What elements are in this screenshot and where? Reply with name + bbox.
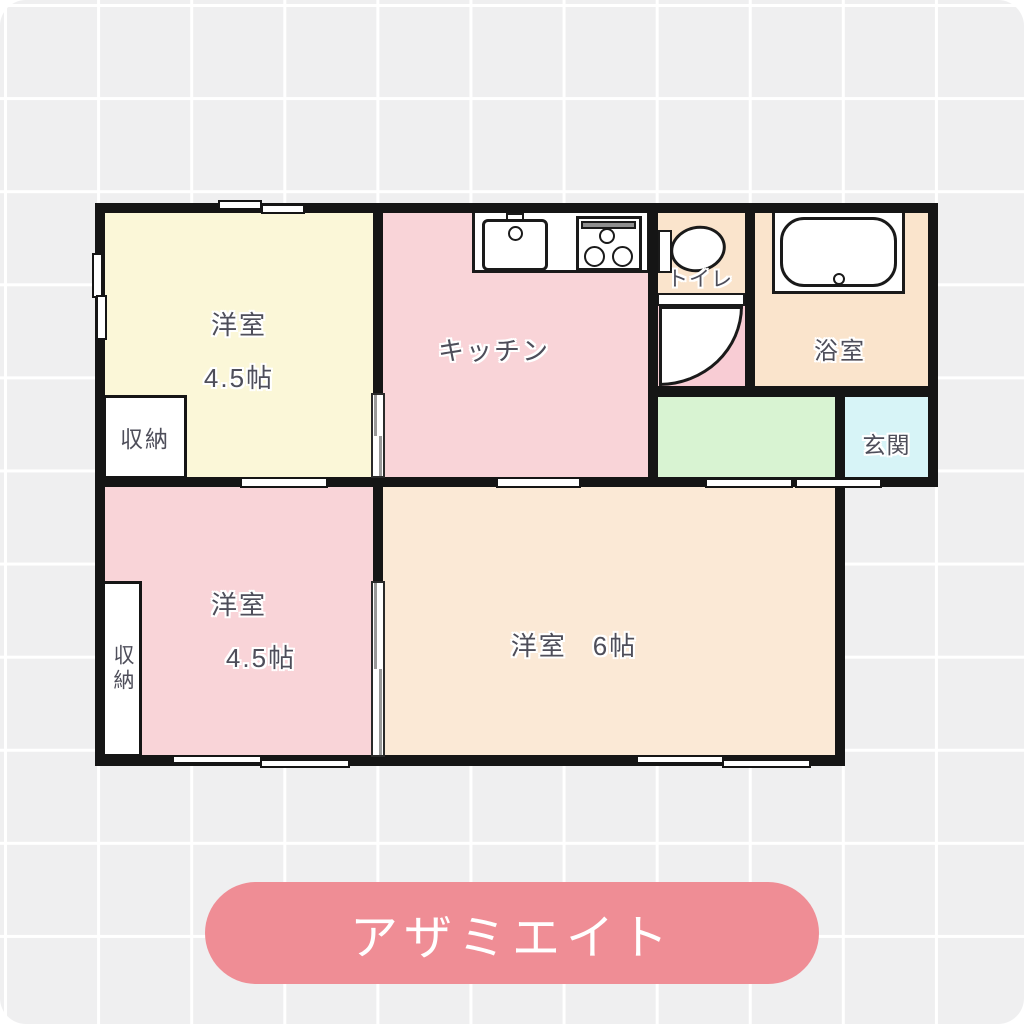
window-top-sash-a bbox=[218, 200, 262, 210]
bathtub-drain-icon bbox=[833, 273, 845, 285]
bedroom-main-size: 6帖 bbox=[593, 631, 637, 661]
bathroom-label: 浴室 bbox=[755, 331, 925, 366]
wall-toilet-bath bbox=[745, 203, 755, 397]
floor-plan: 収納 収納 洋室 4.5帖 キッチン トイレ 浴室 玄関 洋室 4.5帖 洋室6… bbox=[0, 0, 1024, 1024]
faucet-hole-icon bbox=[508, 226, 523, 241]
sliding-door-panel bbox=[379, 669, 382, 755]
bedroom-top-label: 洋室 4.5帖 bbox=[105, 305, 373, 395]
bedroom-top-size: 4.5帖 bbox=[105, 358, 373, 395]
bedroom-top-name: 洋室 bbox=[105, 305, 373, 342]
building-name-badge: アザミエイト bbox=[205, 882, 819, 984]
bedroom-left-label: 洋室 4.5帖 bbox=[105, 585, 373, 675]
room-bedroom-main bbox=[383, 487, 835, 755]
wall-under-bath bbox=[648, 386, 938, 397]
door-opening-bedrooms bbox=[240, 477, 328, 488]
sliding-door-yellow-kitchen bbox=[371, 393, 385, 478]
sliding-door-panel bbox=[379, 436, 382, 477]
door-opening-kitchen-main bbox=[496, 477, 581, 488]
window-bedroom-main-sash-b bbox=[722, 759, 811, 768]
window-top-sash-b bbox=[261, 204, 305, 214]
wall-main-right bbox=[835, 386, 845, 766]
window-bedroom-left-sash-a bbox=[172, 755, 262, 764]
room-hallway bbox=[658, 397, 835, 477]
toilet-name: トイレ bbox=[667, 268, 733, 291]
window-bedroom-left-sash-b bbox=[260, 759, 350, 768]
entrance-label: 玄関 bbox=[845, 426, 928, 460]
closet-top-label: 収納 bbox=[120, 420, 170, 454]
bedroom-main-label: 洋室6帖 bbox=[383, 626, 765, 663]
bathroom-name: 浴室 bbox=[814, 338, 866, 365]
toilet-label: トイレ bbox=[655, 263, 745, 293]
window-bedroom-main-sash-a bbox=[636, 755, 724, 764]
sliding-door-panel bbox=[374, 583, 377, 669]
toilet-door-leaf-icon bbox=[657, 293, 745, 306]
kitchen-name: キッチン bbox=[438, 336, 550, 366]
building-name: アザミエイト bbox=[350, 898, 674, 968]
entrance-front-door bbox=[795, 478, 882, 488]
entrance-name: 玄関 bbox=[863, 432, 911, 458]
stove-burner-left-icon bbox=[584, 246, 605, 267]
window-left-sash-a bbox=[92, 253, 103, 298]
stove-burner-small-icon bbox=[599, 228, 615, 244]
kitchen-label: キッチン bbox=[383, 331, 605, 368]
closet-top: 収納 bbox=[103, 395, 187, 479]
bedroom-left-size: 4.5帖 bbox=[105, 638, 373, 675]
sliding-door-panel bbox=[374, 395, 377, 436]
bedroom-left-name: 洋室 bbox=[105, 585, 373, 622]
wall-right-upper bbox=[928, 203, 938, 487]
wall-kitchen-right bbox=[648, 203, 658, 487]
stove-burner-right-icon bbox=[612, 246, 633, 267]
door-opening-hall-main bbox=[705, 478, 793, 488]
bedroom-main-name: 洋室 bbox=[511, 631, 567, 661]
sliding-door-left-main bbox=[371, 581, 385, 757]
